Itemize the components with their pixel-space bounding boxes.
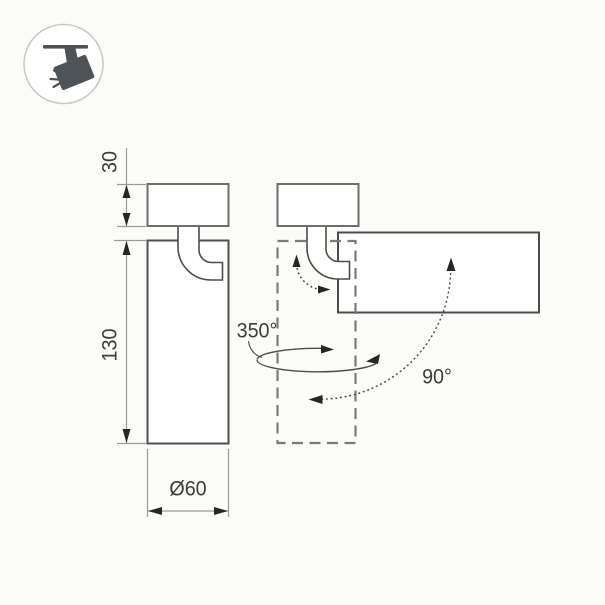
rotation-arrow-right (321, 345, 334, 354)
rotation-arrow-left-down (366, 354, 380, 364)
rotation-ellipse-top-arc (257, 348, 322, 359)
dim-arrow-up (123, 241, 131, 255)
swivel-arrow-up (293, 255, 301, 268)
dim-arrow-right (214, 507, 228, 515)
technical-drawing (0, 0, 605, 605)
logo-light-ray (51, 79, 59, 80)
angle-label-tilt: 90° (422, 367, 452, 388)
side-ceiling-mount-outline (278, 184, 359, 226)
side-view (278, 184, 540, 443)
dim-arrow-down (123, 213, 131, 226)
swivel-arrow-right (318, 286, 331, 294)
dim-arrow-up (123, 185, 131, 198)
dim-arrow-left (148, 507, 162, 515)
spotlight-logo (24, 25, 103, 104)
rotation-ellipse-bottom-arc (257, 360, 376, 372)
dim-label-diameter: Ø60 (169, 479, 206, 500)
dim-label-body-height: 130 (100, 329, 121, 362)
side-rotated-body-outline (338, 233, 539, 313)
dim-label-mount-height: 30 (100, 151, 121, 173)
rotation-label-leader (249, 341, 263, 358)
front-ceiling-mount-outline (148, 184, 229, 226)
dim-arrow-down (123, 429, 131, 443)
angle-label-rotation: 350° (237, 321, 278, 342)
technical-drawing-page: 30 130 Ø60 350° 90° (0, 0, 605, 605)
front-view (148, 184, 229, 444)
tilt-arrow-left (309, 395, 323, 404)
